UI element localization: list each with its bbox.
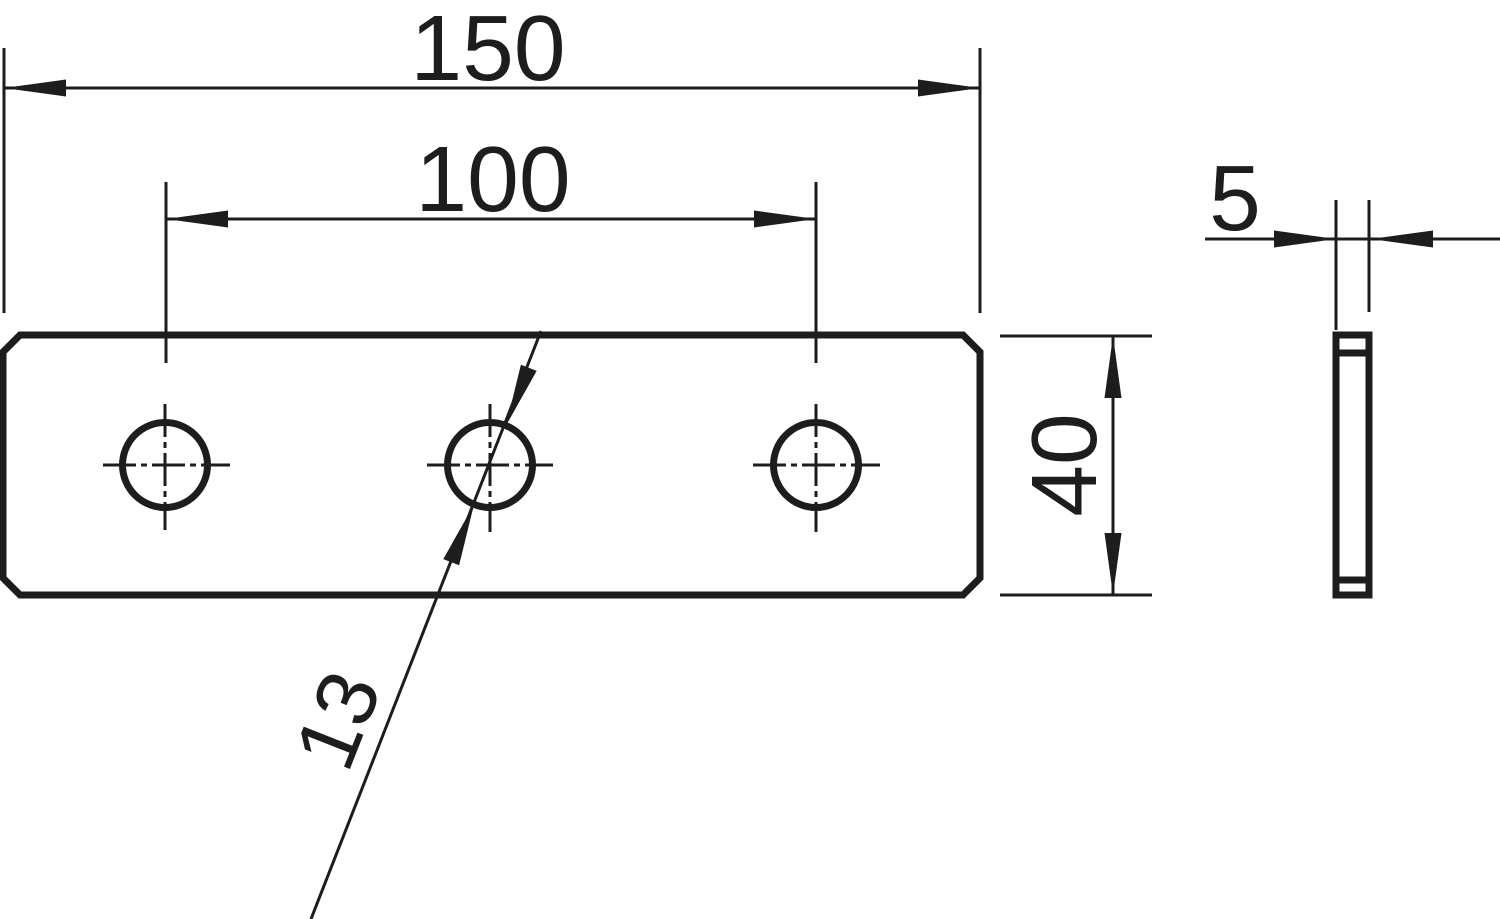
dimension-hole-diameter: 13 xyxy=(277,331,541,919)
arrowhead-left xyxy=(166,211,228,228)
arrowhead-right xyxy=(754,211,816,228)
arrowhead-top xyxy=(1105,336,1122,398)
dimension-label-thickness: 5 xyxy=(1209,146,1261,250)
side-view xyxy=(1336,335,1369,595)
technical-drawing-page: 150 100 40 5 xyxy=(0,0,1500,919)
side-view-outline xyxy=(1336,335,1369,595)
arrowhead-right xyxy=(918,80,980,97)
arrowhead-upper xyxy=(506,365,537,426)
dimension-label-plate-height: 40 xyxy=(1012,413,1116,516)
dimension-label-hole-spacing: 100 xyxy=(415,127,570,231)
arrowhead-right xyxy=(1371,231,1433,248)
dimension-hole-spacing: 100 xyxy=(166,127,816,363)
arrowhead-lower xyxy=(443,505,474,566)
diameter-dimension-line xyxy=(311,331,541,919)
arrowhead-left xyxy=(1274,231,1336,248)
dimension-thickness: 5 xyxy=(1205,146,1500,330)
dimension-label-overall-length: 150 xyxy=(410,0,565,100)
arrowhead-left xyxy=(4,80,66,97)
dimension-label-hole-diameter: 13 xyxy=(277,659,400,782)
technical-drawing-canvas: 150 100 40 5 xyxy=(0,0,1500,919)
front-view xyxy=(3,335,980,595)
dimension-plate-height: 40 xyxy=(1000,336,1152,595)
arrowhead-bottom xyxy=(1105,533,1122,595)
